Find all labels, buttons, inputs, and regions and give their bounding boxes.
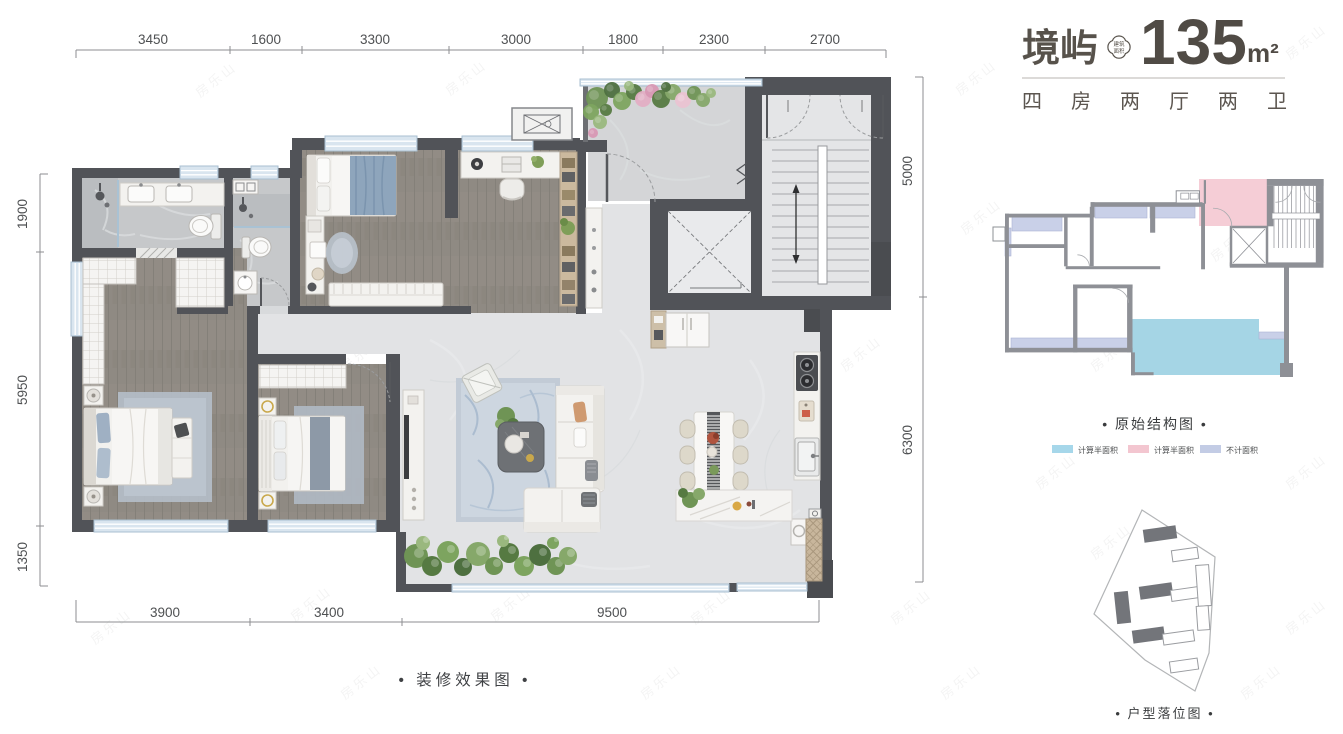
svg-text:5950: 5950	[15, 375, 30, 405]
svg-text:6300: 6300	[900, 425, 915, 455]
svg-text:计算半面积: 计算半面积	[1078, 445, 1118, 455]
svg-text:9500: 9500	[597, 605, 627, 620]
svg-text:1350: 1350	[15, 542, 30, 572]
svg-text:1800: 1800	[608, 32, 638, 47]
svg-text:境屿: 境屿	[1022, 28, 1098, 70]
svg-text:5000: 5000	[900, 156, 915, 186]
svg-text:3300: 3300	[360, 32, 390, 47]
svg-text:计算半面积: 计算半面积	[1154, 445, 1194, 455]
svg-text:面积: 面积	[1113, 48, 1125, 55]
svg-text:3400: 3400	[314, 605, 344, 620]
svg-text:135: 135	[1140, 6, 1247, 78]
svg-text:2700: 2700	[810, 32, 840, 47]
svg-text:• 装修效果图 •: • 装修效果图 •	[399, 671, 532, 689]
svg-text:3900: 3900	[150, 605, 180, 620]
svg-text:• 户型落位图 •: • 户型落位图 •	[1115, 706, 1214, 721]
svg-text:四房两厅两卫: 四房两厅两卫	[1022, 90, 1316, 113]
svg-text:2300: 2300	[699, 32, 729, 47]
svg-text:1600: 1600	[251, 32, 281, 47]
svg-text:不计面积: 不计面积	[1226, 445, 1258, 455]
svg-text:• 原始结构图 •: • 原始结构图 •	[1102, 416, 1208, 432]
svg-text:3000: 3000	[501, 32, 531, 47]
svg-text:建筑: 建筑	[1113, 40, 1125, 48]
svg-text:m²: m²	[1247, 38, 1279, 68]
svg-text:3450: 3450	[138, 32, 168, 47]
svg-text:1900: 1900	[15, 199, 30, 229]
